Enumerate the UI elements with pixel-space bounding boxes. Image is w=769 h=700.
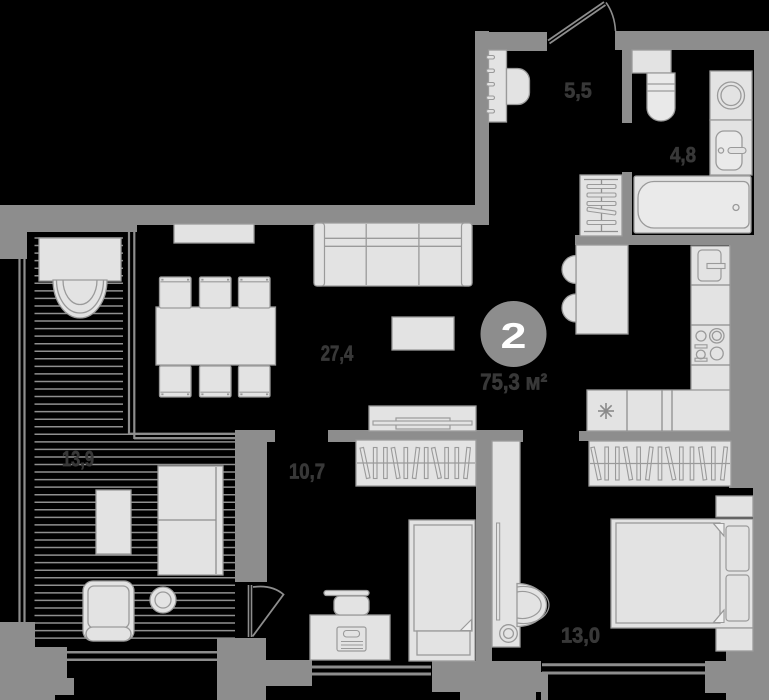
svg-text:5,5: 5,5 <box>564 79 592 103</box>
svg-text:10,7: 10,7 <box>289 460 325 484</box>
svg-text:13,9: 13,9 <box>62 447 94 471</box>
svg-text:2: 2 <box>501 315 527 356</box>
svg-text:13,0: 13,0 <box>561 624 600 648</box>
svg-text:27,4: 27,4 <box>321 342 354 366</box>
svg-text:4,8: 4,8 <box>670 143 696 167</box>
svg-text:75,3 м²: 75,3 м² <box>480 369 547 395</box>
